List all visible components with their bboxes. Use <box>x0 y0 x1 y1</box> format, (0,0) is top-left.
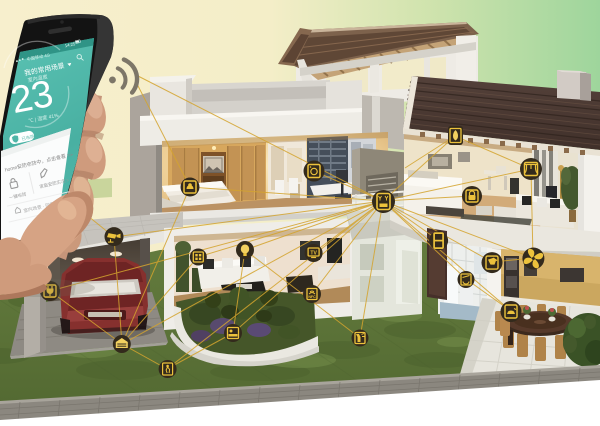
svg-text:TV: TV <box>310 251 317 257</box>
svg-text:NFC: NFC <box>308 295 316 299</box>
